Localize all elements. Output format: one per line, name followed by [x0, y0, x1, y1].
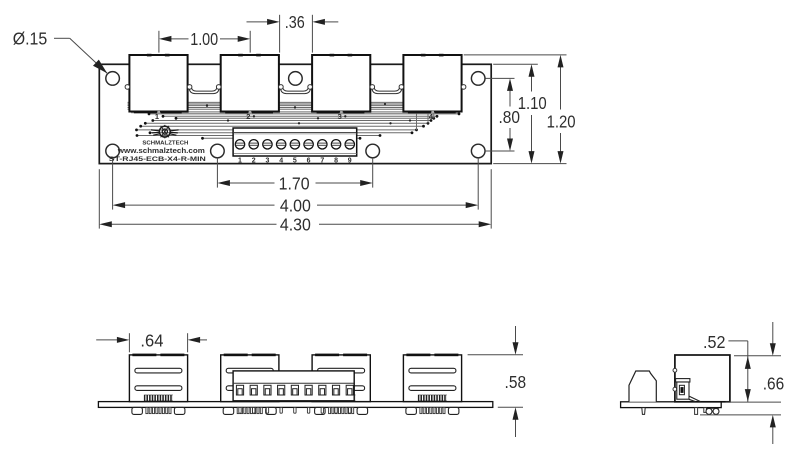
svg-text:1: 1 [155, 112, 159, 121]
svg-text:1.20: 1.20 [547, 111, 576, 131]
svg-text:Ø.15: Ø.15 [13, 29, 48, 49]
svg-text:6: 6 [307, 157, 311, 164]
svg-text:4.00: 4.00 [280, 195, 311, 215]
svg-text:1.00: 1.00 [190, 29, 218, 49]
svg-text:1.70: 1.70 [279, 173, 310, 193]
svg-text:3: 3 [338, 112, 342, 121]
svg-text:9: 9 [348, 157, 352, 164]
svg-text:4.30: 4.30 [280, 215, 311, 235]
svg-text:.52: .52 [703, 332, 725, 352]
svg-text:2: 2 [252, 157, 256, 164]
svg-text:5: 5 [293, 157, 297, 164]
svg-text:.64: .64 [140, 331, 163, 351]
svg-text:3: 3 [265, 157, 269, 164]
svg-text:2: 2 [246, 112, 250, 121]
svg-text:1.10: 1.10 [518, 93, 547, 113]
svg-text:www.schmalztech.com: www.schmalztech.com [117, 146, 205, 155]
svg-text:8: 8 [334, 157, 338, 164]
svg-text:4: 4 [279, 157, 283, 164]
svg-text:.66: .66 [763, 374, 785, 394]
svg-text:7: 7 [320, 157, 324, 164]
svg-text:.36: .36 [285, 12, 305, 32]
svg-text:.58: .58 [505, 372, 527, 392]
svg-text:1: 1 [238, 157, 242, 164]
svg-text:ST-RJ45-ECB-X4-R-MIN: ST-RJ45-ECB-X4-R-MIN [109, 156, 206, 163]
